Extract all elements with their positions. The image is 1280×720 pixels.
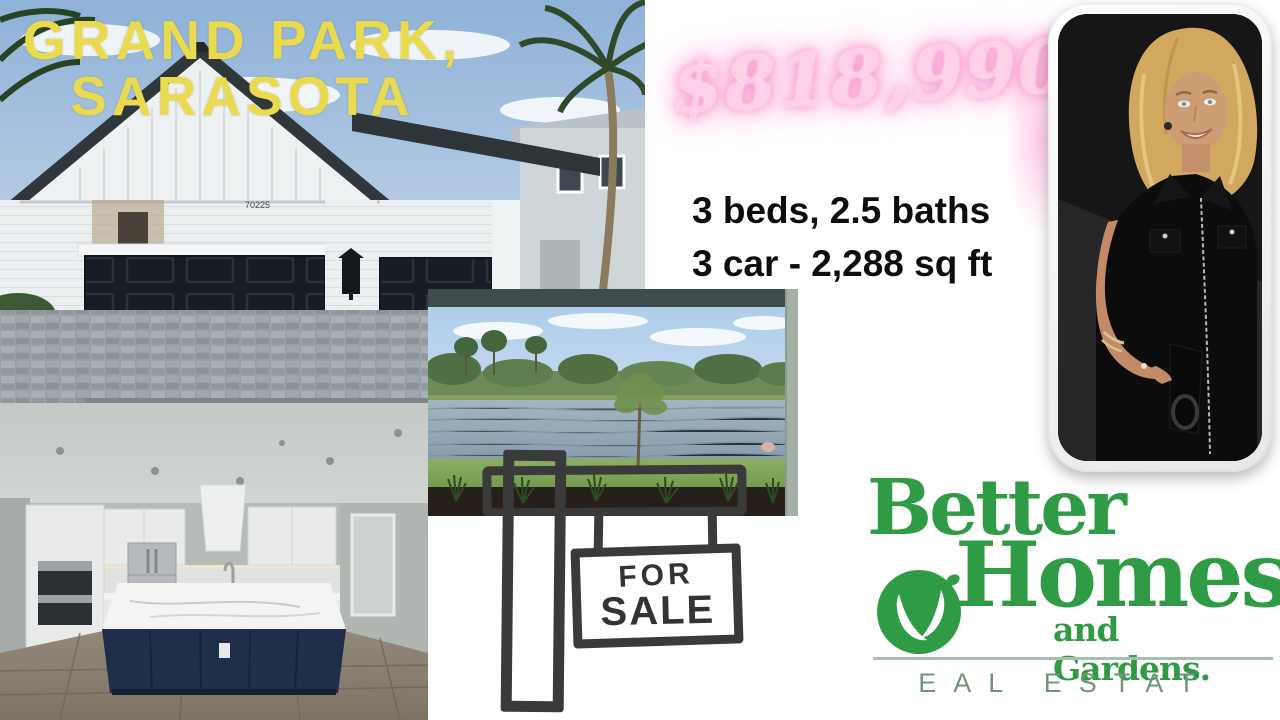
roof-overhang	[428, 289, 798, 307]
specs-line1: 3 beds, 2.5 baths	[692, 184, 1022, 237]
sign-hanger-left	[594, 512, 604, 552]
realtor-phone-frame	[1048, 3, 1272, 472]
neon-price: $818,990	[670, 24, 1059, 129]
page-title: GRAND PARK, SARASOTA	[5, 12, 480, 124]
hallway-opening	[352, 515, 394, 615]
brand-word-homes: Homes	[955, 530, 1280, 620]
specs-line2: 3 car - 2,288 sq ft	[692, 237, 1022, 290]
for-sale-sign-board: FOR SALE	[570, 543, 743, 648]
wall-oven-cabinet	[26, 505, 104, 651]
brokerage-logo: Better Homes and Gardens. EAL ESTAT	[855, 468, 1280, 718]
listing-specs: 3 beds, 2.5 baths 3 car - 2,288 sq ft	[692, 184, 1022, 290]
lake-illustration	[428, 289, 798, 516]
brand-divider	[873, 657, 1273, 660]
house-number: 70225	[245, 200, 270, 210]
kitchen-illustration	[0, 403, 428, 720]
kitchen-interior-photo	[0, 403, 428, 720]
lake-view-photo	[428, 289, 798, 516]
kitchen-island	[102, 583, 346, 695]
real-estate-thumbnail: 70225	[0, 0, 1280, 720]
for-sale-sign-post	[501, 450, 567, 713]
realtor-photo	[1058, 14, 1262, 461]
range-hood	[200, 485, 246, 551]
title-line1: GRAND PARK,	[5, 12, 480, 68]
realtor-illustration	[1058, 14, 1262, 461]
outfit	[1096, 174, 1257, 461]
neighbor-house	[510, 108, 645, 310]
bhg-leaf-icon	[875, 568, 963, 656]
pink-ball	[761, 442, 775, 452]
for-sale-line2: SALE	[600, 587, 716, 635]
brand-tagline-real-estate: EAL ESTAT	[855, 668, 1275, 699]
title-line2: SARASOTA	[5, 68, 480, 124]
